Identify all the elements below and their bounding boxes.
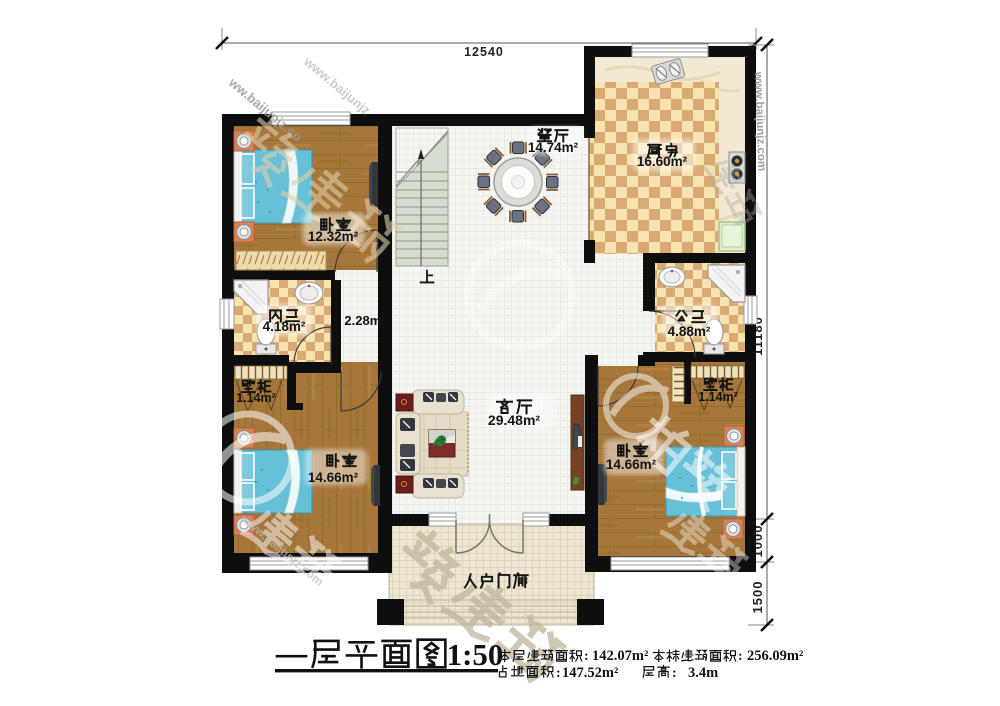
svg-text:3.4m: 3.4m bbox=[688, 665, 718, 681]
svg-text:12.32m²: 12.32m² bbox=[308, 229, 359, 244]
svg-text::: : bbox=[672, 666, 677, 681]
svg-text::: : bbox=[738, 649, 743, 664]
svg-text:1:50: 1:50 bbox=[447, 637, 504, 672]
svg-text:1.14m²: 1.14m² bbox=[236, 391, 276, 405]
svg-text:147.52m²: 147.52m² bbox=[562, 665, 618, 681]
svg-text:12540: 12540 bbox=[464, 45, 504, 59]
svg-text:142.07m²: 142.07m² bbox=[592, 648, 648, 664]
svg-text:2.28m²: 2.28m² bbox=[344, 313, 386, 328]
svg-text::: : bbox=[584, 649, 589, 664]
svg-text:4.88m²: 4.88m² bbox=[668, 324, 711, 339]
svg-text::: : bbox=[556, 666, 561, 681]
svg-text:4.18m²: 4.18m² bbox=[263, 319, 306, 334]
svg-text:1500: 1500 bbox=[750, 581, 765, 614]
svg-text:29.48m²: 29.48m² bbox=[488, 412, 540, 428]
svg-text:1.14m²: 1.14m² bbox=[698, 390, 738, 404]
svg-text:14.66m²: 14.66m² bbox=[606, 457, 657, 472]
svg-text:256.09m²: 256.09m² bbox=[747, 648, 803, 664]
svg-text:14.74m²: 14.74m² bbox=[528, 140, 579, 155]
svg-text:16.60m²: 16.60m² bbox=[637, 154, 688, 169]
svg-text:14.66m²: 14.66m² bbox=[308, 470, 359, 485]
